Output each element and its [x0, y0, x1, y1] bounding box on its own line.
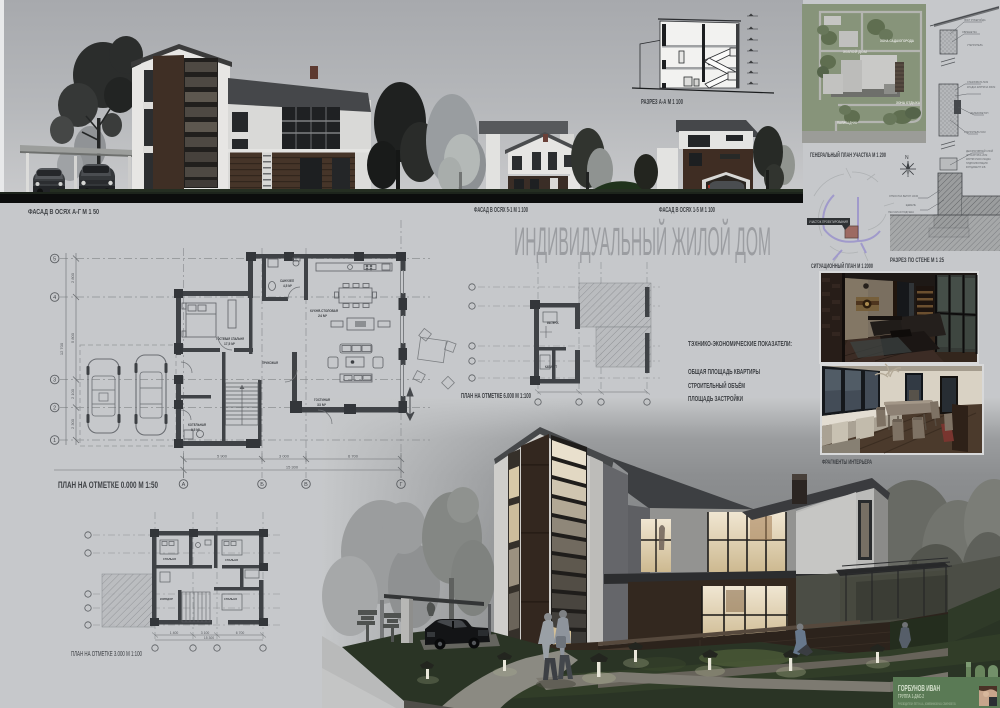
svg-text:ФАСАД В ОСЯХ 1-5 М 1 100: ФАСАД В ОСЯХ 1-5 М 1 100 — [659, 207, 715, 214]
svg-text:ДЕКОРАТИВНЫЙ СЛОЙ: ДЕКОРАТИВНЫЙ СЛОЙ — [966, 150, 993, 153]
svg-text:ЖИЛОЙ ДОМ: ЖИЛОЙ ДОМ — [842, 50, 867, 54]
svg-text:4,5 М²: 4,5 М² — [283, 284, 293, 288]
svg-text:3 000: 3 000 — [279, 454, 290, 459]
svg-text:КЛАДКА КИРПИЧА 38СМ: КЛАДКА КИРПИЧА 38СМ — [967, 86, 995, 89]
svg-text:ПЕСЧАНАЯ ПОДУШКА: ПЕСЧАНАЯ ПОДУШКА — [888, 211, 914, 214]
svg-text:3 100: 3 100 — [201, 631, 210, 635]
svg-text:ФАСАД В ОСЯХ 5-1 М 1 100: ФАСАД В ОСЯХ 5-1 М 1 100 — [474, 207, 528, 214]
svg-text:ПЛАН НА ОТМЕТКЕ 6.000 М 1:100: ПЛАН НА ОТМЕТКЕ 6.000 М 1:100 — [461, 393, 531, 400]
svg-text:СПАЛЬНЯ: СПАЛЬНЯ — [225, 558, 238, 562]
svg-text:6 700: 6 700 — [236, 631, 245, 635]
svg-text:15 300: 15 300 — [204, 636, 214, 640]
svg-text:ШТУКАТУРКА 2СМ: ШТУКАТУРКА 2СМ — [966, 154, 987, 157]
svg-text:МАСТЕРСК.: МАСТЕРСК. — [547, 321, 559, 325]
svg-text:УТЕПЛИТЕЛЬ 5СМ: УТЕПЛИТЕЛЬ 5СМ — [964, 131, 985, 134]
svg-text:15 300: 15 300 — [286, 465, 299, 470]
svg-text:ЗОНА ОТДЫХА: ЗОНА ОТДЫХА — [896, 101, 920, 105]
svg-text:9,5 М²: 9,5 М² — [191, 428, 201, 432]
svg-text:УТЕПЛИТЕЛЬ: УТЕПЛИТЕЛЬ — [967, 44, 983, 47]
svg-text:ОТМОСТКА БЕТОН 10СМ: ОТМОСТКА БЕТОН 10СМ — [889, 195, 918, 198]
svg-text:САНУЗЕЛ: САНУЗЕЛ — [280, 279, 294, 283]
svg-text:ТЭХНИКО-ЭКОНОМИЧЕСКИЕ ПОКАЗАТЕ: ТЭХНИКО-ЭКОНОМИЧЕСКИЕ ПОКАЗАТЕЛИ: — [688, 339, 792, 348]
svg-text:УЧАСТОК ПРОЕКТИРОВАНИЯ: УЧАСТОК ПРОЕКТИРОВАНИЯ — [809, 220, 848, 224]
svg-text:ПЛАН НА ОТМЕТКЕ 3.000 М 1:100: ПЛАН НА ОТМЕТКЕ 3.000 М 1:100 — [71, 651, 142, 658]
svg-text:ГИДРОИЗОЛЯЦИЯ: ГИДРОИЗОЛЯЦИЯ — [966, 162, 988, 165]
svg-text:5 900: 5 900 — [217, 454, 228, 459]
svg-text:3: 3 — [53, 378, 56, 384]
svg-text:2 800: 2 800 — [70, 272, 75, 283]
svg-text:33 М²: 33 М² — [317, 403, 327, 407]
svg-text:24 М²: 24 М² — [318, 314, 328, 318]
svg-text:1: 1 — [53, 438, 56, 444]
svg-text:КУХНЯ-СТОЛОВАЯ: КУХНЯ-СТОЛОВАЯ — [310, 309, 338, 313]
svg-text:ПЛОЩАДЬ ЗАСТРОЙКИ: ПЛОЩАДЬ ЗАСТРОЙКИ — [688, 394, 743, 403]
svg-text:5 800: 5 800 — [70, 332, 75, 343]
svg-text:РАЗРЕЗ ПО СТЕНЕ М 1 25: РАЗРЕЗ ПО СТЕНЕ М 1 25 — [890, 257, 944, 264]
svg-text:5: 5 — [53, 257, 56, 263]
svg-text:N: N — [905, 155, 909, 161]
svg-text:17,5 М²: 17,5 М² — [224, 342, 236, 346]
svg-text:ГРУППА 1-ДАС-2: ГРУППА 1-ДАС-2 — [898, 694, 924, 700]
svg-text:ФУНДАМЕНТ ЖБ: ФУНДАМЕНТ ЖБ — [966, 166, 986, 169]
svg-text:Г: Г — [400, 482, 403, 488]
svg-text:ОБЩАЯ ПЛОЩАДЬ КВАРТИРЫ: ОБЩАЯ ПЛОЩАДЬ КВАРТИРЫ — [688, 367, 760, 376]
svg-text:2 100: 2 100 — [70, 388, 75, 399]
svg-text:ФРАГМЕНТЫ ИНТЕРЬЕРА: ФРАГМЕНТЫ ИНТЕРЬЕРА — [822, 459, 872, 466]
svg-text:КИРПИЧНАЯ КЛАДКА: КИРПИЧНАЯ КЛАДКА — [966, 158, 991, 161]
svg-text:СИТУАЦИОННЫЙ ПЛАН М 1 2000: СИТУАЦИОННЫЙ ПЛАН М 1 2000 — [811, 261, 873, 270]
svg-text:РУКОВОДИТЕЛИ: ПЕТУХ А.А., КОЖЕ: РУКОВОДИТЕЛИ: ПЕТУХ А.А., КОЖЕВНИКОВ М.В… — [898, 702, 956, 706]
svg-text:СПАЛЬНЯ: СПАЛЬНЯ — [224, 597, 237, 601]
svg-text:КОРИДОР: КОРИДОР — [160, 597, 173, 601]
svg-text:ФАСАД В ОСЯХ А-Г М 1 50: ФАСАД В ОСЯХ А-Г М 1 50 — [28, 207, 99, 216]
svg-text:2 300: 2 300 — [70, 418, 75, 429]
svg-text:12 700: 12 700 — [59, 342, 64, 355]
svg-text:ГЕНЕРАЛЬНЫЙ ПЛАН УЧАСТКА М 1 2: ГЕНЕРАЛЬНЫЙ ПЛАН УЧАСТКА М 1 200 — [810, 150, 886, 159]
svg-text:4: 4 — [53, 295, 56, 301]
svg-text:ГОРБУНОВ ИВАН: ГОРБУНОВ ИВАН — [898, 683, 940, 693]
svg-text:ИНДИВИДУАЛЬНЫЙ ЖИЛОЙ ДОМ: ИНДИВИДУАЛЬНЫЙ ЖИЛОЙ ДОМ — [514, 218, 771, 264]
svg-text:6 700: 6 700 — [348, 454, 359, 459]
svg-text:ЖЕЛЕЗОБЕТОН: ЖЕЛЕЗОБЕТОН — [970, 112, 989, 115]
svg-text:КОТЕЛЬНАЯ: КОТЕЛЬНАЯ — [188, 423, 206, 427]
svg-text:ЗОНА САДА/ОГОРОДА: ЗОНА САДА/ОГОРОДА — [880, 39, 914, 43]
svg-text:РАЗРЕЗ А-А М 1 100: РАЗРЕЗ А-А М 1 100 — [641, 99, 683, 106]
svg-text:1 400: 1 400 — [170, 631, 179, 635]
svg-text:СТЕКЛОВАТА 5СМ: СТЕКЛОВАТА 5СМ — [967, 81, 988, 84]
svg-text:ЛИСТ РУБЕРОЙДА: ЛИСТ РУБЕРОЙДА — [964, 19, 986, 22]
svg-text:ГОСТИНАЯ: ГОСТИНАЯ — [314, 398, 330, 402]
svg-text:2: 2 — [53, 406, 56, 412]
svg-text:А: А — [182, 482, 186, 488]
svg-text:В: В — [304, 482, 308, 488]
svg-text:ПЛАН НА ОТМЕТКЕ 0.000 М 1:50: ПЛАН НА ОТМЕТКЕ 0.000 М 1:50 — [58, 480, 158, 490]
svg-text:ЩЕБЕНЬ: ЩЕБЕНЬ — [906, 204, 917, 207]
svg-text:ОБРЕШЕТКА: ОБРЕШЕТКА — [962, 31, 977, 34]
svg-text:Б: Б — [260, 482, 264, 488]
svg-text:ПРИХОЖАЯ: ПРИХОЖАЯ — [262, 361, 278, 365]
svg-text:КАБИНЕТ: КАБИНЕТ — [545, 365, 557, 369]
svg-text:СТРОИТЕЛЬНЫЙ ОБЪЁМ: СТРОИТЕЛЬНЫЙ ОБЪЁМ — [688, 381, 745, 390]
svg-text:СПАЛЬНЯ: СПАЛЬНЯ — [163, 557, 176, 561]
svg-text:ПАЛИСАДНИК: ПАЛИСАДНИК — [837, 121, 858, 125]
svg-text:ГОСТЕВАЯ СПАЛЬНЯ: ГОСТЕВАЯ СПАЛЬНЯ — [216, 337, 244, 341]
